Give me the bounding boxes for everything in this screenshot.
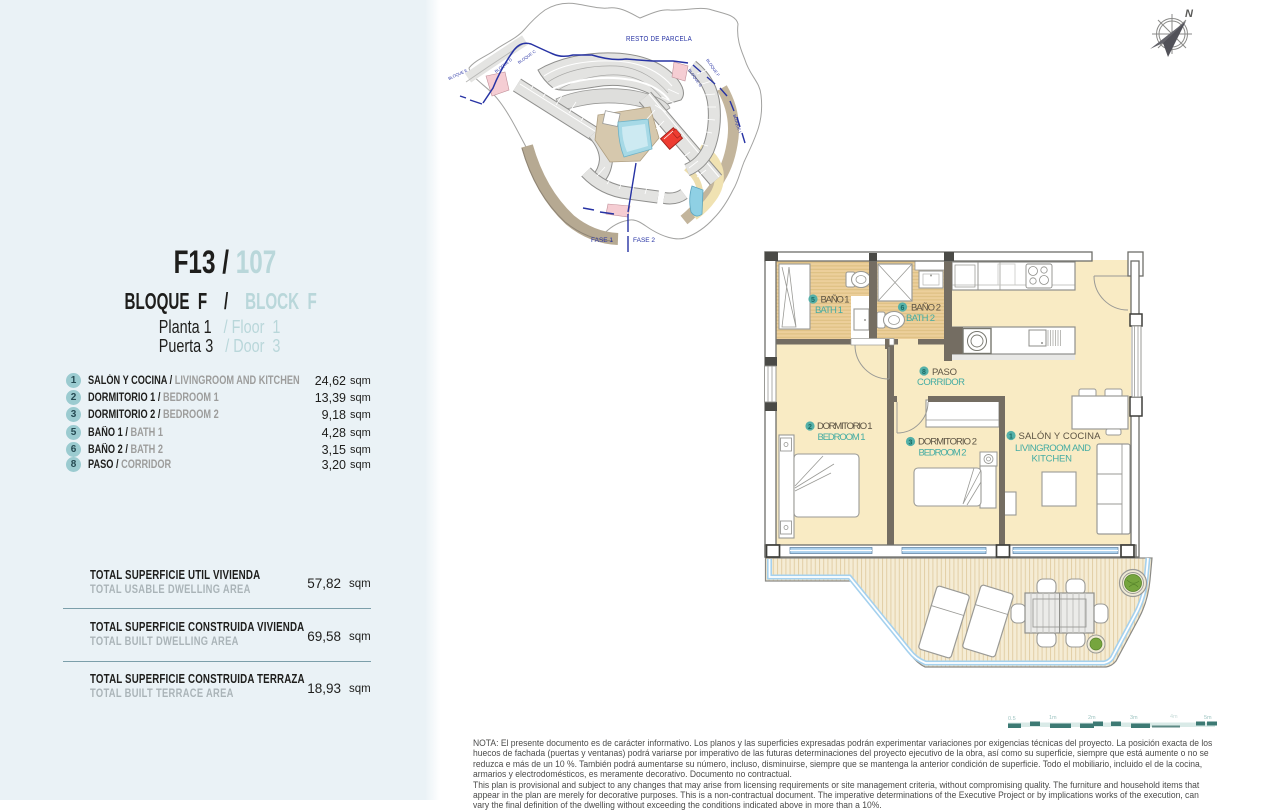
svg-text:FASE 1: FASE 1 — [591, 237, 613, 244]
svg-text:5m: 5m — [1204, 715, 1212, 721]
svg-text:BEDROOM 2: BEDROOM 2 — [919, 448, 967, 459]
svg-text:1: 1 — [1009, 434, 1013, 441]
svg-text:2: 2 — [808, 424, 812, 431]
svg-text:FASE 2: FASE 2 — [633, 237, 655, 244]
svg-text:RESTO DE PARCELA: RESTO DE PARCELA — [626, 36, 692, 43]
svg-text:6: 6 — [901, 305, 905, 312]
svg-text:8: 8 — [922, 369, 926, 376]
svg-text:BAÑO 1: BAÑO 1 — [821, 295, 850, 306]
svg-text:BATH 2: BATH 2 — [906, 313, 935, 324]
svg-text:BLOQUE E: BLOQUE E — [447, 68, 468, 81]
svg-text:0.5: 0.5 — [1008, 716, 1016, 722]
svg-text:3: 3 — [909, 440, 913, 447]
svg-text:N: N — [1185, 8, 1194, 20]
svg-text:KITCHEN: KITCHEN — [1032, 454, 1073, 465]
svg-text:BATH 1: BATH 1 — [815, 305, 843, 316]
svg-text:1m: 1m — [1049, 715, 1057, 721]
svg-text:4m: 4m — [1170, 714, 1178, 720]
svg-text:2m: 2m — [1088, 715, 1096, 721]
svg-text:3m: 3m — [1130, 715, 1138, 721]
svg-text:BEDROOM 1: BEDROOM 1 — [818, 432, 866, 443]
svg-text:DORMITORIO 1: DORMITORIO 1 — [817, 421, 873, 432]
svg-text:SALÓN Y COCINA: SALÓN Y COCINA — [1019, 431, 1102, 442]
svg-text:LIVINGROOM AND: LIVINGROOM AND — [1015, 443, 1091, 454]
svg-text:BAÑO 2: BAÑO 2 — [911, 303, 941, 314]
svg-text:5: 5 — [811, 297, 815, 304]
svg-text:CORRIDOR: CORRIDOR — [917, 377, 965, 388]
svg-text:DORMITORIO 2: DORMITORIO 2 — [918, 437, 977, 448]
